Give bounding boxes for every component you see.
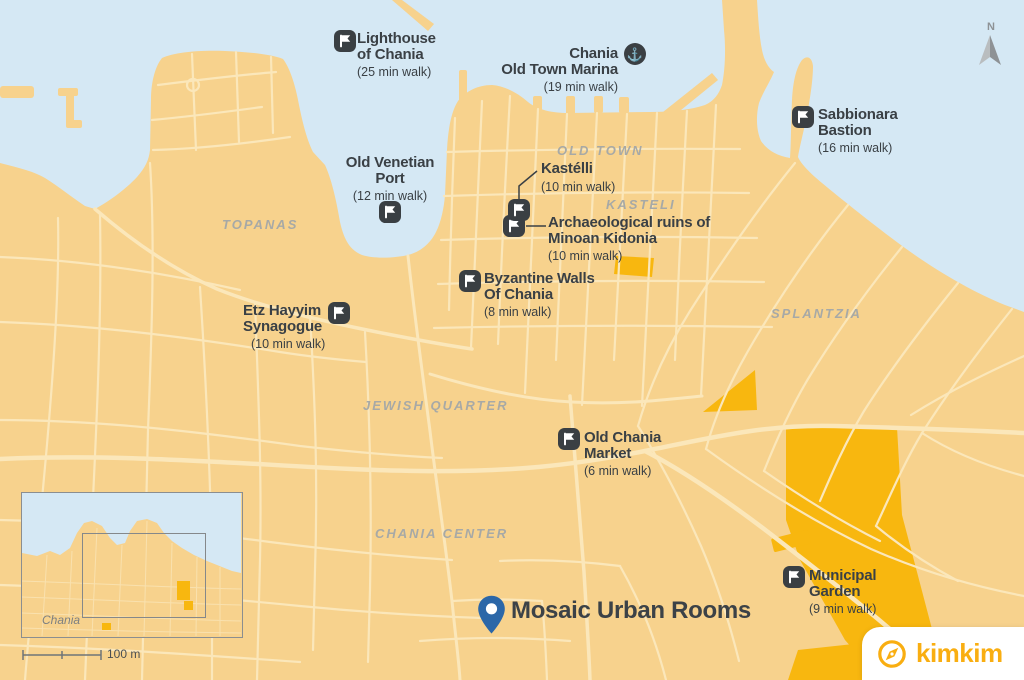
- destination-pin-icon: [477, 595, 507, 635]
- scale-label: 100 m: [107, 647, 140, 661]
- inset-overview-map: Chania: [21, 492, 243, 638]
- poi-label-marina: Chania Old Town Marina (19 min walk): [460, 46, 618, 94]
- destination-label: Mosaic Urban Rooms: [511, 597, 751, 625]
- area-label-chania-center: CHANIA CENTER: [375, 526, 508, 541]
- anchor-icon: ⚓: [624, 43, 646, 65]
- poi-label-sabbionara: Sabbionara Bastion (16 min walk): [818, 107, 898, 155]
- municipal-garden-flag-icon: [783, 566, 805, 588]
- scale-bar: 100 m: [22, 645, 182, 665]
- poi-label-byzantine-walls: Byzantine Walls Of Chania (8 min walk): [484, 271, 595, 319]
- north-label: N: [971, 22, 1011, 33]
- market-flag-icon: [558, 428, 580, 450]
- area-label-kasteli: KASTELI: [606, 197, 676, 212]
- compass-icon: [876, 638, 908, 670]
- brand-logo[interactable]: kimkim: [862, 627, 1024, 680]
- north-arrow-icon: [971, 33, 1011, 69]
- area-label-splantzia: SPLANTZIA: [771, 306, 862, 321]
- poi-label-synagogue: Etz Hayyim Synagogue (10 min walk): [243, 303, 325, 351]
- sabbionara-flag-icon: [792, 106, 814, 128]
- poi-label-venetian-port: Old Venetian Port (12 min walk): [338, 155, 442, 203]
- brand-wordmark: kimkim: [916, 638, 1003, 669]
- inset-place-label: Chania: [42, 613, 80, 627]
- venetian-port-flag-icon: [379, 201, 401, 223]
- area-label-old-town: OLD TOWN: [557, 143, 644, 158]
- anchor-glyph: ⚓: [627, 48, 643, 61]
- kastelli-flag-icon: [508, 199, 530, 221]
- area-label-topanas: TOPANAS: [222, 217, 298, 232]
- map-canvas[interactable]: OLD TOWN KASTELI TOPANAS SPLANTZIA JEWIS…: [0, 0, 1024, 680]
- inset-view-rectangle: [82, 533, 206, 618]
- poi-label-kastelli: Kastélli (10 min walk): [541, 161, 615, 194]
- poi-label-minoan-ruins: Archaeological ruins of Minoan Kidonia (…: [548, 215, 710, 263]
- poi-label-municipal-garden: Municipal Garden (9 min walk): [809, 568, 876, 616]
- scale-bar-line: [22, 645, 102, 665]
- poi-label-market: Old Chania Market (6 min walk): [584, 430, 661, 478]
- north-indicator: N: [971, 22, 1011, 74]
- byzantine-walls-flag-icon: [459, 270, 481, 292]
- poi-label-lighthouse: Lighthouse of Chania (25 min walk): [357, 31, 436, 79]
- lighthouse-flag-icon: [334, 30, 356, 52]
- area-label-jewish-quarter: JEWISH QUARTER: [363, 398, 509, 413]
- synagogue-flag-icon: [328, 302, 350, 324]
